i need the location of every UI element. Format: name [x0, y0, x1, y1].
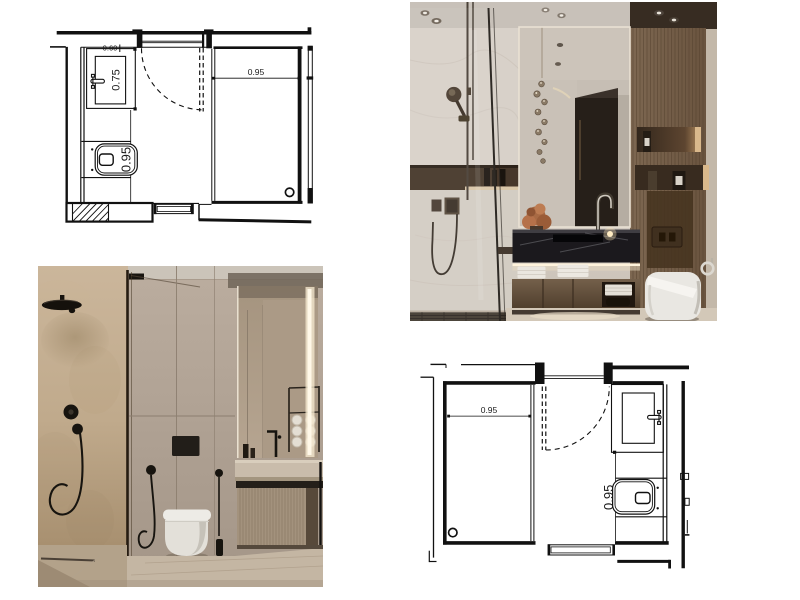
- svg-text:0.95: 0.95: [601, 485, 616, 510]
- svg-text:0.75: 0.75: [111, 69, 123, 90]
- svg-text:0.95: 0.95: [118, 147, 133, 172]
- svg-text:0.95: 0.95: [248, 67, 265, 77]
- svg-text:0.60: 0.60: [103, 44, 118, 53]
- svg-text:0.95: 0.95: [481, 405, 498, 415]
